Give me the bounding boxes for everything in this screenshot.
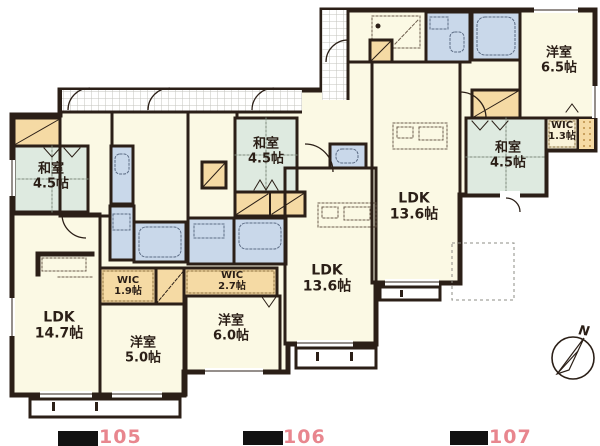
label-washitsu-105: 和室4.5帖 [33, 162, 69, 191]
label-wic-106: WIC2.7帖 [218, 270, 246, 292]
label-ldk-106: LDK13.6帖 [303, 263, 352, 294]
label-washitsu-107: 和室4.5帖 [490, 141, 526, 170]
floor-plan-drawing [0, 0, 600, 446]
label-ldk-107: LDK13.6帖 [390, 191, 439, 222]
unit-type-box-107 [450, 431, 488, 445]
unit-number-106: 106 [283, 428, 326, 446]
label-washitsu-106: 和室4.5帖 [248, 137, 284, 166]
label-ldk-105: LDK14.7帖 [35, 310, 84, 341]
floor-plan: 和室4.5帖 LDK14.7帖 WIC1.9帖 洋室5.0帖 和室4.5帖 WI… [0, 0, 600, 446]
label-wic-107: WIC1.3帖 [548, 120, 576, 142]
unit-type-box-105 [58, 431, 98, 446]
label-yoshitsu-107: 洋室6.5帖 [541, 46, 577, 75]
wic-shelf-107 [578, 118, 595, 150]
unit-type-box-106 [243, 431, 283, 445]
room-washroom-106 [188, 218, 234, 264]
label-yoshitsu-106: 洋室6.0帖 [213, 314, 249, 343]
room-toilet-106 [330, 144, 366, 168]
compass-n-label: N [578, 323, 591, 339]
label-yoshitsu-105: 洋室5.0帖 [125, 336, 161, 365]
unit-number-107: 107 [489, 428, 532, 446]
compass [552, 337, 594, 379]
unit-number-105: 105 [99, 428, 142, 446]
label-wic-105: WIC1.9帖 [114, 275, 142, 297]
room-toilet-105 [111, 146, 133, 204]
